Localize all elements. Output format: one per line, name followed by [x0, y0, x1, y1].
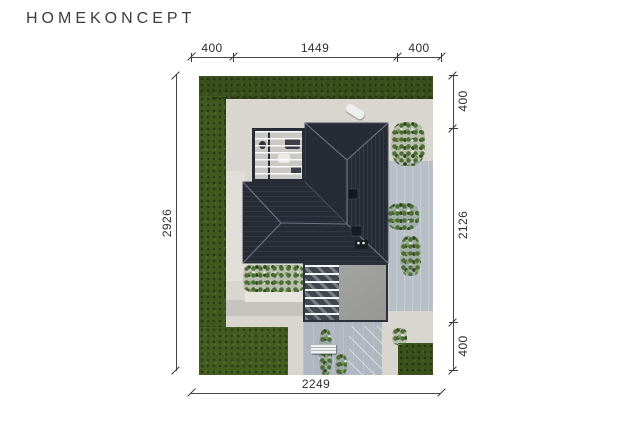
- site-plan-image: [199, 76, 433, 375]
- brand-logo: HOMEKONCEPT: [26, 10, 195, 28]
- entry-canopy: [311, 344, 336, 354]
- dim-label-right-top: 400: [456, 90, 470, 111]
- garage-block: [303, 263, 388, 322]
- garage-pergola-slats: [305, 265, 339, 320]
- house-roof: [199, 76, 433, 375]
- garage-flat-roof: [339, 265, 386, 320]
- chimney-2: [351, 226, 362, 236]
- dim-label-right-bottom: 400: [456, 335, 470, 356]
- terrace-pergola: [252, 128, 305, 182]
- pergola-slats: [255, 131, 302, 179]
- dim-label-bottom: 2249: [302, 377, 330, 391]
- dim-label-left: 2926: [160, 209, 174, 237]
- roof-vents: [355, 240, 368, 249]
- dim-label-top-left: 400: [201, 41, 222, 55]
- dim-label-top-center: 1449: [301, 41, 329, 55]
- page: HOMEKONCEPT: [0, 0, 634, 448]
- chimney: [348, 189, 358, 199]
- dim-label-right-middle: 2126: [456, 211, 470, 239]
- dim-label-top-right: 400: [408, 41, 429, 55]
